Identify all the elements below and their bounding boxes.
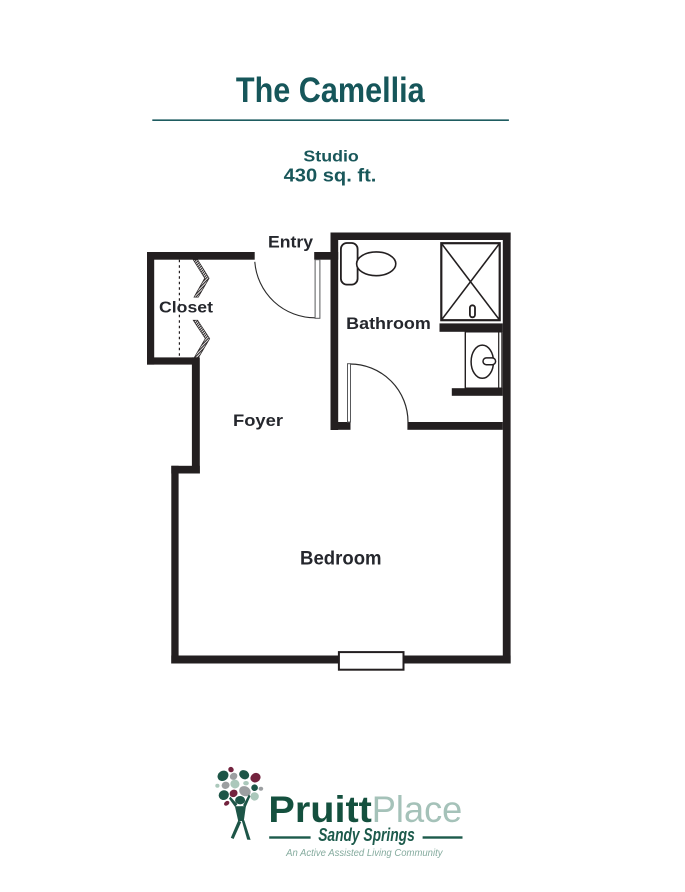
svg-text:430 sq. ft.: 430 sq. ft.	[284, 165, 377, 185]
svg-text:Bathroom: Bathroom	[346, 315, 431, 333]
svg-text:Closet: Closet	[159, 299, 214, 316]
svg-text:Pruitt: Pruitt	[268, 789, 372, 830]
svg-text:Studio: Studio	[303, 148, 359, 165]
svg-text:Bedroom: Bedroom	[300, 547, 382, 569]
svg-text:Foyer: Foyer	[233, 412, 284, 430]
svg-text:An Active Assisted Living Comm: An Active Assisted Living Community	[285, 848, 443, 859]
svg-text:Sandy Springs: Sandy Springs	[318, 825, 415, 845]
svg-text:Place: Place	[372, 789, 463, 830]
svg-text:Entry: Entry	[268, 234, 314, 252]
svg-text:The Camellia: The Camellia	[236, 71, 425, 110]
